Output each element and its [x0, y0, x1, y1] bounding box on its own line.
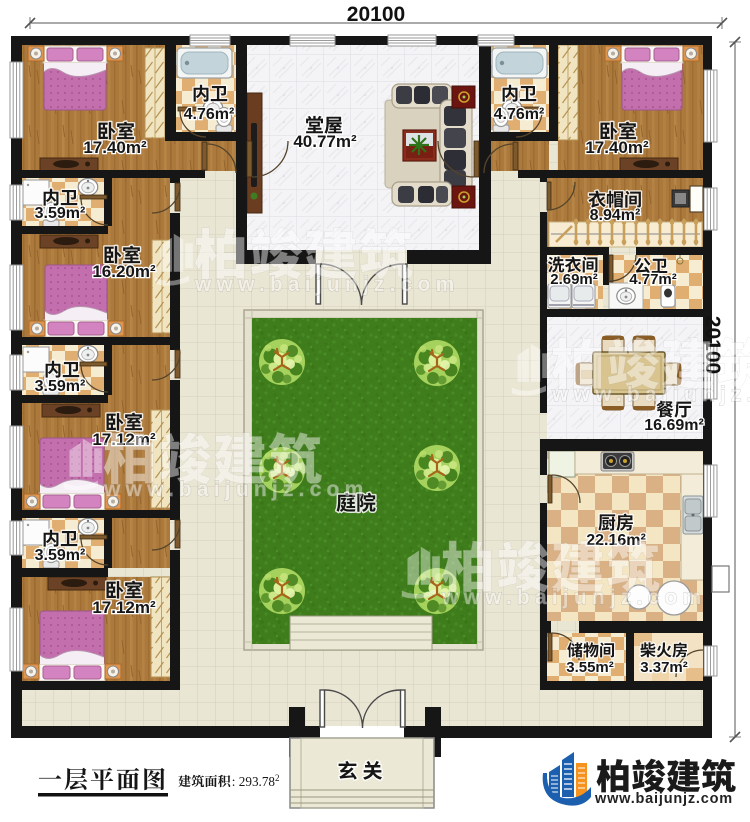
svg-text:www.baijunjz.com: www.baijunjz.com [551, 383, 750, 406]
svg-text:www.baijunjz.com: www.baijunjz.com [103, 478, 368, 501]
svg-text:www.baijunjz.com: www.baijunjz.com [441, 586, 706, 609]
svg-text:www.baijunjz.com: www.baijunjz.com [194, 273, 459, 296]
svg-text:17.12m²: 17.12m² [92, 598, 156, 617]
svg-text:3.37m²: 3.37m² [640, 659, 688, 676]
svg-text:16.20m²: 16.20m² [92, 262, 156, 281]
svg-text:4.76m²: 4.76m² [184, 106, 235, 123]
svg-text:16.69m²: 16.69m² [644, 417, 704, 434]
svg-text:4.77m²: 4.77m² [629, 271, 677, 288]
svg-text:40.77m²: 40.77m² [293, 132, 357, 151]
svg-text:20100: 20100 [347, 3, 405, 26]
svg-text:3.55m²: 3.55m² [566, 659, 614, 676]
svg-text:3.59m²: 3.59m² [35, 205, 86, 222]
svg-text:17.40m²: 17.40m² [83, 138, 147, 157]
svg-text:: 293.782: : 293.782 [232, 773, 280, 789]
svg-text:17.40m²: 17.40m² [585, 138, 649, 157]
svg-text:3.59m²: 3.59m² [35, 547, 86, 564]
svg-text:3.59m²: 3.59m² [35, 378, 86, 395]
svg-text:4.76m²: 4.76m² [494, 106, 545, 123]
svg-text:www.baijunjz.com: www.baijunjz.com [594, 791, 733, 807]
svg-text:8.94m²: 8.94m² [590, 207, 641, 224]
svg-text:2.69m²: 2.69m² [550, 271, 598, 288]
